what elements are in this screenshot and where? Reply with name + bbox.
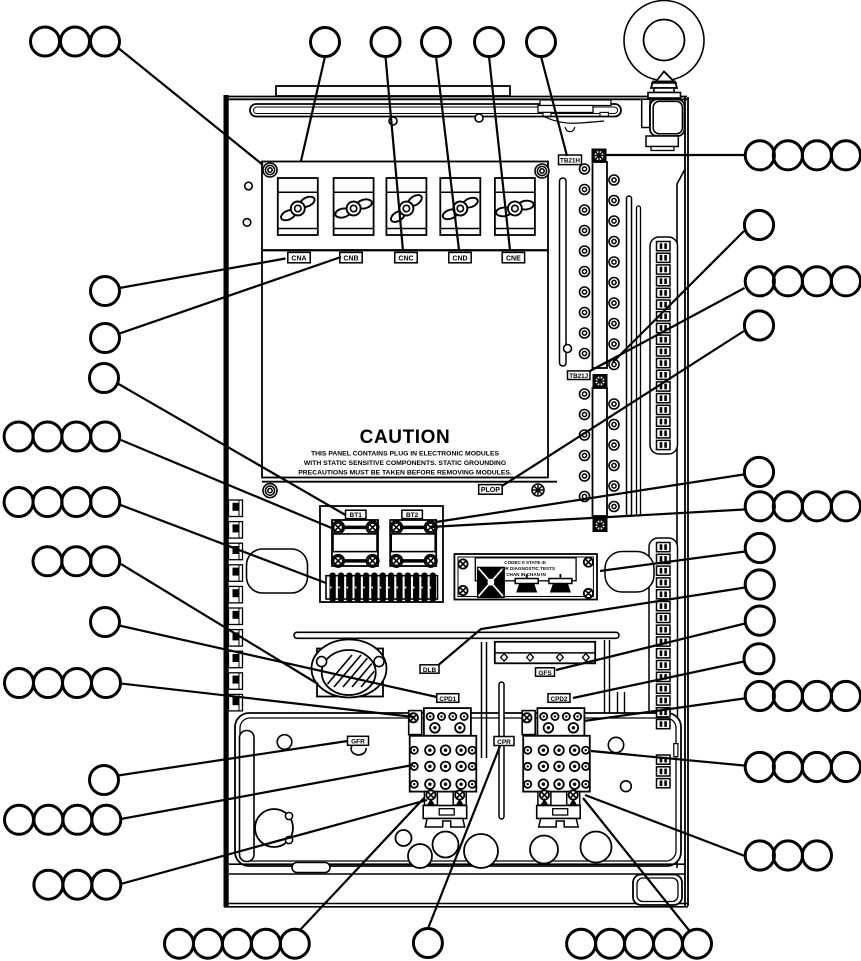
svg-text:PLOP: PLOP: [481, 487, 500, 494]
svg-text:CPD2: CPD2: [551, 696, 568, 703]
svg-text:CAUTION: CAUTION: [360, 427, 451, 448]
svg-text:GFS: GFS: [538, 670, 552, 677]
svg-text:WITH STATIC SENSITIVE COMPONEN: WITH STATIC SENSITIVE COMPONENTS. STATIC…: [304, 460, 506, 467]
svg-text:CNA: CNA: [291, 256, 306, 263]
svg-text:TB21H: TB21H: [560, 158, 580, 165]
svg-text:GFR: GFR: [351, 739, 365, 746]
svg-text:THIS PANEL CONTAINS PLUG IN EL: THIS PANEL CONTAINS PLUG IN ELECTRONIC M…: [311, 451, 500, 458]
svg-text:DLB: DLB: [423, 667, 437, 674]
svg-text:CODEC II STATE-3I: CODEC II STATE-3I: [504, 560, 545, 565]
svg-text:CPR: CPR: [497, 739, 511, 746]
svg-text:TB21J: TB21J: [569, 373, 588, 380]
svg-text:BT2: BT2: [406, 512, 419, 519]
svg-text:CNB: CNB: [343, 256, 358, 263]
svg-text:CND: CND: [452, 256, 467, 263]
svg-text:BT1: BT1: [350, 512, 363, 519]
svg-text:CNE: CNE: [506, 256, 521, 263]
svg-text:CPD1: CPD1: [439, 696, 456, 703]
svg-text:PRECAUTIONS MUST BE TAKEN BEFO: PRECAUTIONS MUST BE TAKEN BEFORE REMOVIN…: [298, 470, 512, 477]
svg-text:FOR DIAGNOSTIC TESTS: FOR DIAGNOSTIC TESTS: [499, 566, 555, 571]
svg-text:CNC: CNC: [398, 256, 413, 263]
